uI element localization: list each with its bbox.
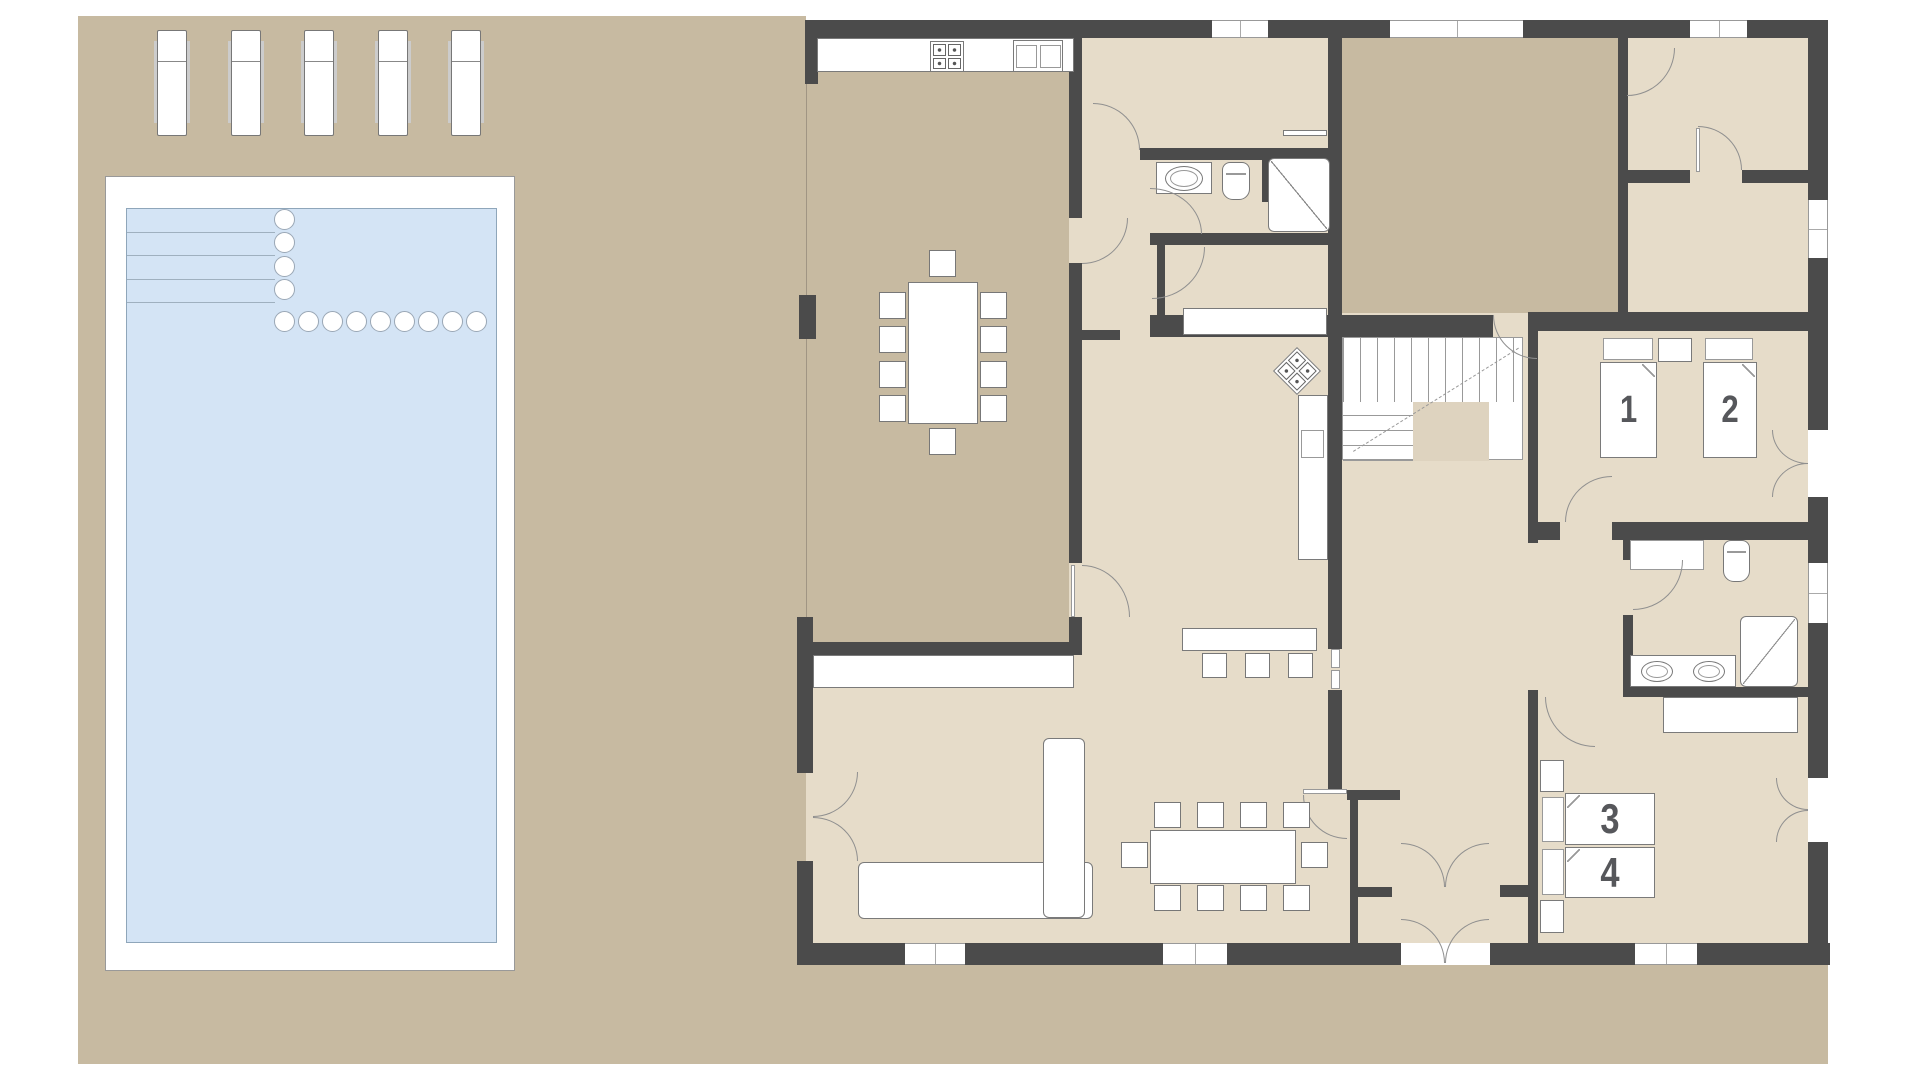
bed-pillow xyxy=(1542,849,1564,895)
pool-step-circle xyxy=(394,311,415,332)
wall-bedroom12-south-2 xyxy=(1612,522,1808,540)
dining-chair xyxy=(929,250,956,277)
wall-bottom-west xyxy=(797,943,1401,965)
wall-right-5 xyxy=(1808,842,1828,965)
bathN-toilet-icon xyxy=(1222,162,1250,200)
wall-right-1 xyxy=(1808,20,1828,200)
wall-roomAB-divider-2 xyxy=(1742,170,1808,183)
indoor-dining-table xyxy=(1150,830,1296,884)
terrace-edge-line xyxy=(806,84,807,617)
wall-entry-west-1 xyxy=(1328,337,1342,649)
bed-pillow xyxy=(1705,338,1753,360)
terrace-dining-table xyxy=(908,282,978,424)
pool-step-circle xyxy=(442,311,463,332)
pool-lane-line xyxy=(127,232,275,233)
window-right-2 xyxy=(1808,563,1828,623)
nightstand-bed4 xyxy=(1540,900,1564,933)
window-right-1 xyxy=(1808,200,1828,258)
pool-step-circle xyxy=(322,311,343,332)
stair-flight-upper xyxy=(1343,338,1524,402)
roomN1-shelf xyxy=(1283,130,1327,136)
wall-kitchen-east-3 xyxy=(1069,617,1082,655)
bed-3-number: 3 xyxy=(1573,793,1647,845)
nightstand-bed12 xyxy=(1658,338,1692,362)
wall-bedrooms-top xyxy=(1528,312,1828,331)
pool-step-circle xyxy=(274,209,295,230)
sun-lounger xyxy=(157,30,187,136)
bed-4-number: 4 xyxy=(1573,847,1647,898)
shower-glass-line xyxy=(1743,619,1795,684)
window-bottom-2 xyxy=(1163,943,1227,965)
floor-plan: 1 2 3 4 xyxy=(0,0,1920,1080)
nightstand-bed3 xyxy=(1540,760,1564,792)
dining-chair xyxy=(980,326,1007,353)
wall-vestibule-west xyxy=(1350,800,1358,943)
dining-chair xyxy=(929,428,956,455)
dining-chair xyxy=(980,395,1007,422)
dining-chair xyxy=(879,292,906,319)
pool-step-circle xyxy=(346,311,367,332)
bed-2-number: 2 xyxy=(1708,362,1752,458)
bar-stool xyxy=(1288,653,1313,678)
wall-right-4 xyxy=(1808,623,1828,778)
bathS-toilet-icon xyxy=(1723,540,1750,582)
wall-right-2 xyxy=(1808,258,1828,430)
dining-chair xyxy=(1240,802,1267,828)
wall-right-3 xyxy=(1808,497,1828,563)
wall-wing-west-2 xyxy=(1528,690,1538,965)
wall-entry-west-2 xyxy=(1328,690,1342,790)
wall-wing-stub xyxy=(1500,885,1528,897)
bed-pillow xyxy=(1603,338,1653,360)
dining-chair xyxy=(879,326,906,353)
wall-bathS-south xyxy=(1633,687,1808,697)
pool-lane-line xyxy=(127,279,275,280)
dining-chair xyxy=(1121,842,1148,868)
sideboard xyxy=(813,655,1074,688)
bed-1-number: 1 xyxy=(1605,362,1652,458)
dining-chair xyxy=(980,292,1007,319)
pool-step-circle xyxy=(370,311,391,332)
kitchen-sink-icon xyxy=(1013,40,1063,72)
bed-2: 2 xyxy=(1703,338,1758,458)
kitchen2-counter-north xyxy=(1183,308,1327,335)
wall-bedroom12-south-1 xyxy=(1538,522,1560,540)
dining-chair xyxy=(879,395,906,422)
pool-step-circle xyxy=(466,311,487,332)
pool-lane-line xyxy=(127,255,275,256)
wall-wc-south xyxy=(1082,330,1120,340)
bed-pillow xyxy=(1542,797,1564,842)
wall-terrace-divider xyxy=(797,642,1082,655)
pool-step-circle xyxy=(418,311,439,332)
pool-step-circle xyxy=(274,311,295,332)
dining-chair xyxy=(1283,885,1310,911)
bathN-shower xyxy=(1268,158,1330,232)
wall-roomAB-divider-1 xyxy=(1628,170,1690,183)
shower-glass-line xyxy=(1271,161,1327,229)
bathS-shower xyxy=(1740,616,1798,687)
window-top-1 xyxy=(1212,20,1268,38)
terrace-column xyxy=(799,295,816,339)
wall-garage-west xyxy=(1328,38,1342,337)
bedroom34-wardrobe xyxy=(1663,697,1798,733)
bathS-vanity xyxy=(1630,655,1736,687)
window-bottom-3 xyxy=(1635,943,1697,965)
bathS-sink-right-icon xyxy=(1693,661,1725,682)
kitchen2-appliance xyxy=(1301,430,1324,458)
bar-stool xyxy=(1202,653,1227,678)
sun-lounger xyxy=(451,30,481,136)
dining-chair xyxy=(1197,802,1224,828)
dining-chair xyxy=(980,361,1007,388)
sun-lounger xyxy=(231,30,261,136)
sink-basin-right xyxy=(1040,45,1061,68)
door-leaf xyxy=(1303,789,1347,794)
dining-chair xyxy=(1240,885,1267,911)
sun-lounger xyxy=(304,30,334,136)
window-top-3 xyxy=(1690,20,1747,38)
dining-chair xyxy=(1154,885,1181,911)
door-leaf xyxy=(1331,670,1340,689)
sofa-chaise xyxy=(1043,738,1085,918)
pool-lane-line xyxy=(127,302,275,303)
door-leaf xyxy=(1331,649,1340,668)
yard-bottom xyxy=(806,965,1828,1064)
wall-vestibule-stub xyxy=(1358,887,1392,897)
bed-3: 3 xyxy=(1540,791,1657,847)
dining-chair xyxy=(1197,885,1224,911)
dining-chair xyxy=(1154,802,1181,828)
wall-living-west-1 xyxy=(797,617,813,773)
wall-entry-jog xyxy=(1347,790,1400,800)
pool-step-circle xyxy=(274,256,295,277)
staircase xyxy=(1342,337,1523,460)
dining-chair xyxy=(879,361,906,388)
pool-step-circle xyxy=(298,311,319,332)
wall-top xyxy=(805,20,1828,38)
bar-island xyxy=(1182,628,1317,651)
bed-4: 4 xyxy=(1540,845,1657,901)
sun-lounger xyxy=(378,30,408,136)
bed-1: 1 xyxy=(1600,338,1658,458)
dining-chair xyxy=(1283,802,1310,828)
bar-stool xyxy=(1245,653,1270,678)
bathN-sink-icon xyxy=(1165,166,1203,191)
garage-room-floor xyxy=(1342,38,1618,313)
wall-bath-north-bottom xyxy=(1150,233,1342,245)
door-leaf xyxy=(1071,565,1075,617)
stair-landing xyxy=(1413,402,1489,461)
dining-chair xyxy=(1301,842,1328,868)
sink-basin-left xyxy=(1016,45,1037,68)
wall-kitchen-east-2 xyxy=(1069,263,1082,563)
window-bottom-1 xyxy=(905,943,965,965)
kitchen2-counter-east xyxy=(1298,395,1328,560)
wall-living-west-2 xyxy=(797,861,813,945)
stair-flight-lower xyxy=(1343,402,1413,461)
bathS-sink-left-icon xyxy=(1641,661,1673,682)
stove-icon xyxy=(930,41,964,72)
window-top-2 xyxy=(1390,20,1523,38)
